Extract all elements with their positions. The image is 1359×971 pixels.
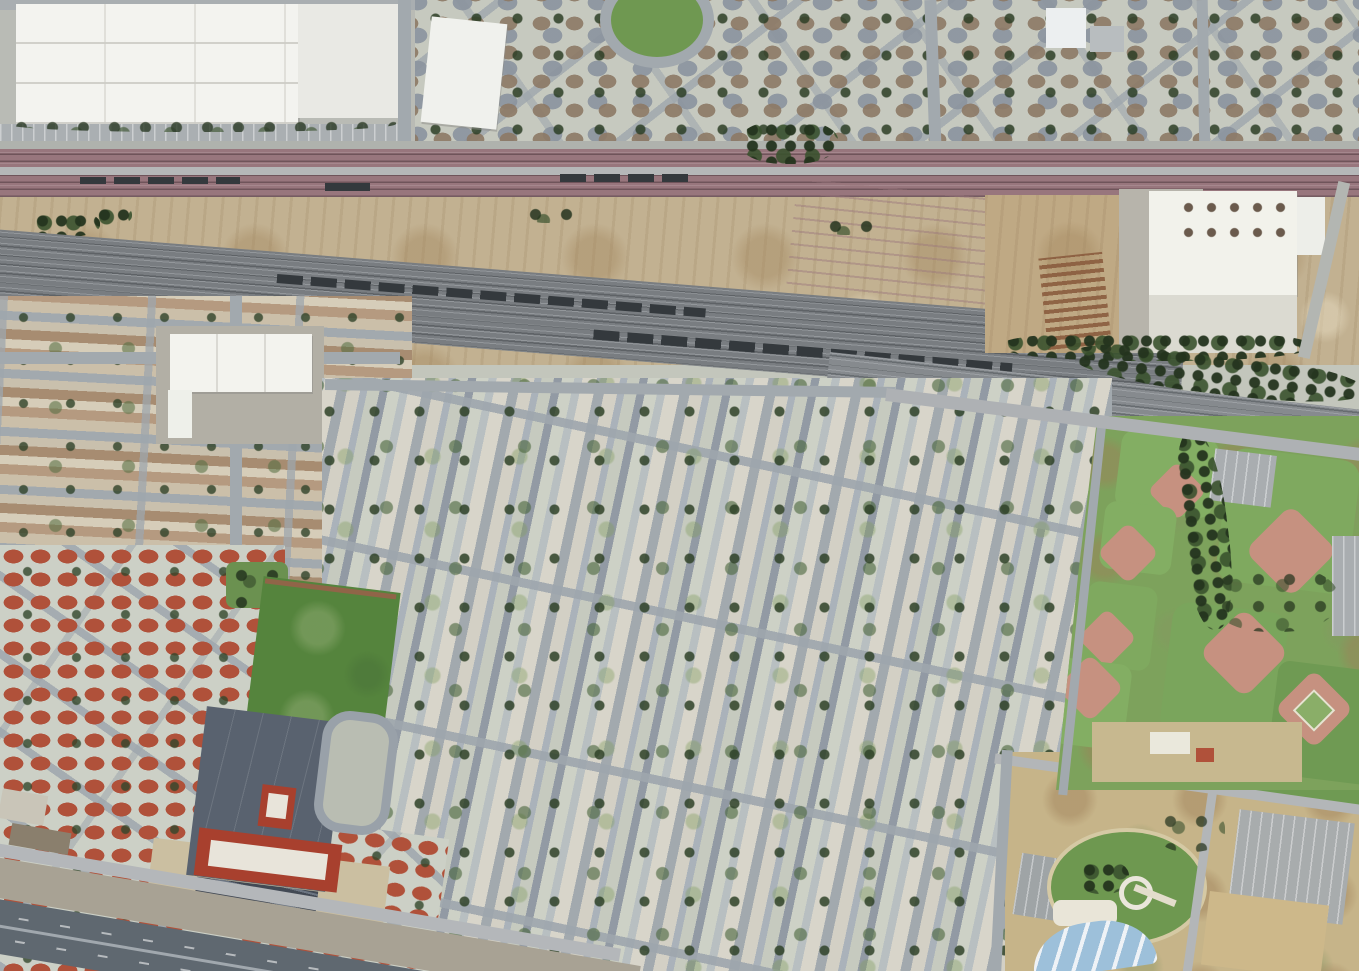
school-building-roof xyxy=(208,840,328,880)
warehouse-rooftop-east xyxy=(298,4,398,118)
industrial-annex xyxy=(1297,197,1325,255)
dirt-tree-3 xyxy=(520,201,580,223)
ballpark-dirt-south xyxy=(1092,722,1302,782)
industrial-building xyxy=(1149,191,1297,295)
vertical-street-west xyxy=(398,0,411,152)
roof-vents xyxy=(1177,195,1291,247)
corridor-tree-cluster xyxy=(740,120,838,164)
park-trees xyxy=(1155,808,1225,852)
freight-train-3 xyxy=(325,183,370,191)
commercial-rooftop xyxy=(1046,8,1086,48)
freight-train-2 xyxy=(560,174,690,182)
park-dirt-lot xyxy=(1201,891,1329,971)
ballpark-trees-mid xyxy=(1212,566,1338,632)
ballpark-hut xyxy=(1196,748,1214,762)
mid-warehouse xyxy=(170,334,312,392)
dirt-tree-2 xyxy=(92,205,132,225)
top-subdivision xyxy=(415,0,1359,152)
dirt-tree-4 xyxy=(820,213,876,235)
ballpark-building xyxy=(1150,732,1190,754)
corridor-frontage-road xyxy=(0,141,1359,149)
small-warehouse xyxy=(421,16,508,129)
school-outbuilding xyxy=(258,784,297,830)
aerial-satellite-map: Aerial satellite photograph of a suburba… xyxy=(0,0,1359,971)
freight-train-1 xyxy=(80,177,240,184)
school-outbuilding-roof xyxy=(266,793,289,819)
ballpark-parking-east xyxy=(1332,536,1359,636)
warehouse-rooftop xyxy=(16,4,298,124)
commercial-rooftop-2 xyxy=(1090,26,1124,52)
parking-tree-row xyxy=(6,114,396,132)
mid-warehouse-annex xyxy=(168,390,192,438)
industrial-facility xyxy=(985,183,1340,363)
